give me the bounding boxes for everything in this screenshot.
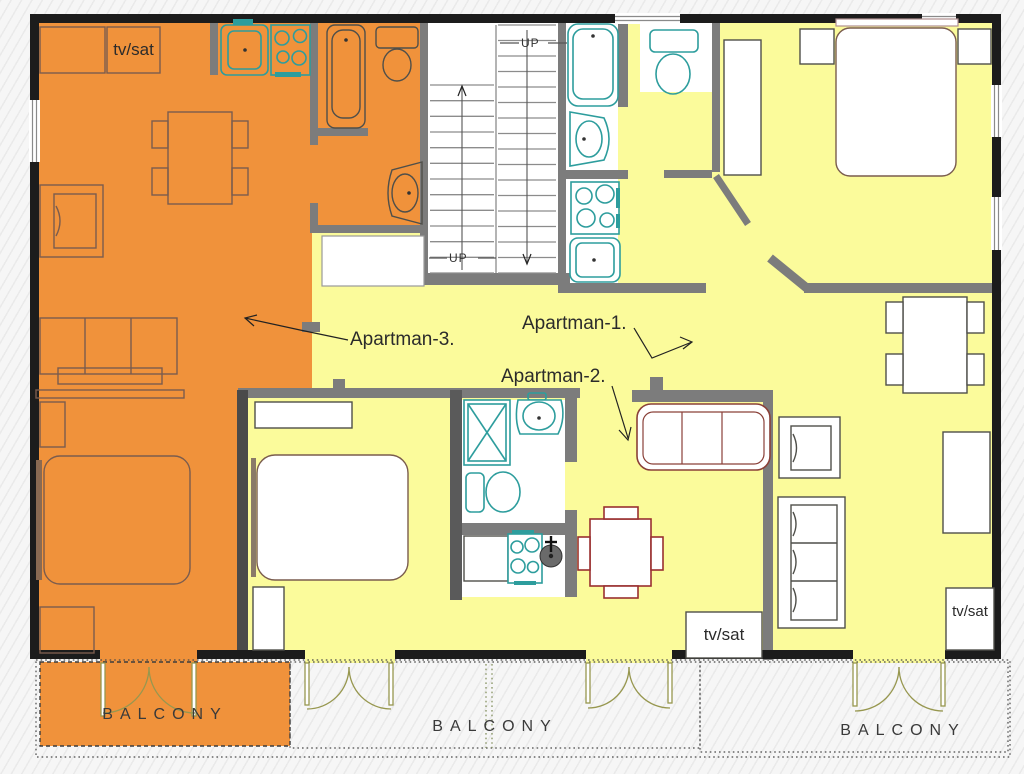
counter [464,536,508,581]
washbasin-apartman1 [570,112,609,166]
window-top-wall-middle [615,13,680,24]
side-table-apartman1 [943,432,990,533]
tv-sat-label-apartman1: tv/sat [946,588,994,634]
stove-apartman1 [571,182,620,234]
entry-landing [322,236,424,286]
balcony-label-left: BALCONY [60,706,270,724]
dining-table-apartman2 [578,507,663,598]
double-bed-apartman2 [257,455,408,580]
window-right-wall-lower [991,197,1002,250]
balcony-door-apartman2-bedroom [305,663,393,709]
apartman2-label: Apartman-2. [501,366,606,388]
balcony-door-apartman2-living [586,663,672,708]
nightstand [958,29,991,64]
balcony-label-middle: BALCONY [400,718,590,736]
nightstand [800,29,834,64]
balcony-label-right: BALCONY [808,722,998,740]
sofa-apartman2 [637,404,770,470]
shower-apartman2 [464,400,510,465]
up-label-lower: UP [449,251,468,265]
apartman3-label: Apartman-3. [350,329,455,351]
apartman3-area-bottom [38,390,237,654]
dresser [255,402,352,428]
stove-apartman2 [508,534,542,583]
sofa-apartman1 [778,497,845,628]
window-left-wall [29,100,40,162]
wardrobe [724,40,761,175]
headboard-shelf [836,19,958,26]
bathtub-apartman1 [568,24,618,106]
balcony-left-floor [40,662,290,746]
nightstand [253,587,284,650]
kitchen-sink-apartman1 [570,238,620,282]
double-bed-apartman1 [836,28,956,176]
up-label-upper: UP [521,36,540,50]
apartman3-area-mid [38,232,312,390]
window-right-wall-upper [991,85,1002,137]
balcony-door-apartman1 [853,663,945,711]
tv-sat-label-apartman3: tv/sat [107,27,160,73]
apartman1-label: Apartman-1. [522,313,627,335]
armchair-apartman1 [779,417,840,478]
tv-sat-label-apartman2: tv/sat [686,612,762,658]
floor-plan: tv/sat Apartman-3. Apartman-1. Apartman-… [0,0,1024,774]
